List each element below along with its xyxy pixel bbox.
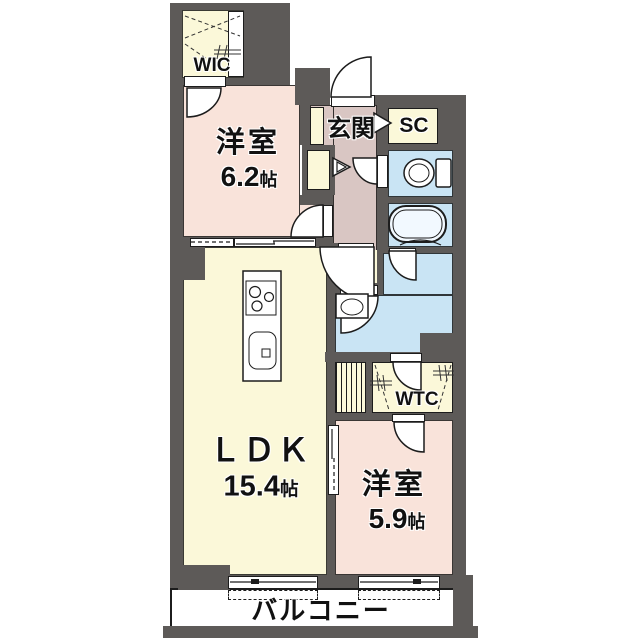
- bedroom2-sliding-door: [328, 425, 339, 495]
- entrance-threshold: [331, 95, 375, 107]
- wall-segment: [163, 626, 478, 638]
- wall-segment: [300, 195, 333, 205]
- bedroom2-window: [358, 576, 440, 589]
- toilet-door-opening: [377, 155, 388, 188]
- bedroom2-size: 5.9帖: [369, 503, 426, 535]
- toilet-room: [388, 150, 453, 197]
- entrance-counter: [310, 107, 324, 145]
- bedroom1-size: 6.2帖: [221, 161, 278, 193]
- bedroom2-door-opening: [392, 414, 425, 422]
- bedroom1-name: 洋室: [216, 119, 280, 161]
- entrance-label: 玄関: [327, 109, 375, 144]
- washroom-upper: [383, 253, 453, 295]
- wtc-label: WTC: [395, 389, 438, 411]
- wic-door-opening: [184, 76, 226, 87]
- wall-segment: [170, 85, 183, 588]
- floor-plan: WIC 洋室 6.2帖 玄関 SC ＬＤＫ 15.4帖 WTC 洋室 5.9帖 …: [0, 0, 640, 640]
- bedroom1-opening-dashed: [190, 238, 234, 247]
- wall-segment: [327, 243, 338, 295]
- wall-segment: [295, 68, 330, 105]
- balcony-label: バルコニー: [251, 591, 390, 628]
- ldk-door-opening: [338, 243, 374, 251]
- ldk-room: [183, 247, 327, 575]
- front-door-swing: [331, 57, 371, 97]
- bath-room: [388, 203, 453, 247]
- ldk-size-unit: 帖: [280, 479, 299, 500]
- bedroom1-size-unit: 帖: [260, 170, 278, 190]
- bedroom1-door-opening: [323, 205, 333, 237]
- bedroom1-door-nook: [300, 205, 323, 237]
- bedroom2-name: 洋室: [362, 461, 426, 503]
- wic-label: WIC: [194, 55, 231, 77]
- bedroom2-size-unit: 帖: [408, 512, 426, 532]
- bedroom1-size-number: 6.2: [221, 161, 260, 192]
- wtc-door-opening: [390, 353, 422, 362]
- ldk-size: 15.4帖: [224, 471, 299, 504]
- bedroom2-size-number: 5.9: [369, 503, 408, 534]
- ldk-nook: [338, 250, 377, 283]
- entrance-storage: [307, 150, 330, 190]
- sc-label: SC: [399, 114, 428, 138]
- wall-segment: [453, 575, 473, 628]
- wall-segment: [178, 565, 230, 590]
- linen-shelf: [335, 362, 366, 413]
- ldk-size-number: 15.4: [224, 471, 280, 503]
- bedroom1-sliding-door: [234, 238, 316, 247]
- ldk-window: [228, 576, 318, 589]
- bath-door-opening: [389, 248, 416, 254]
- washroom-door-opening: [340, 285, 378, 295]
- wall-segment: [438, 120, 466, 150]
- ldk-name: ＬＤＫ: [209, 425, 311, 471]
